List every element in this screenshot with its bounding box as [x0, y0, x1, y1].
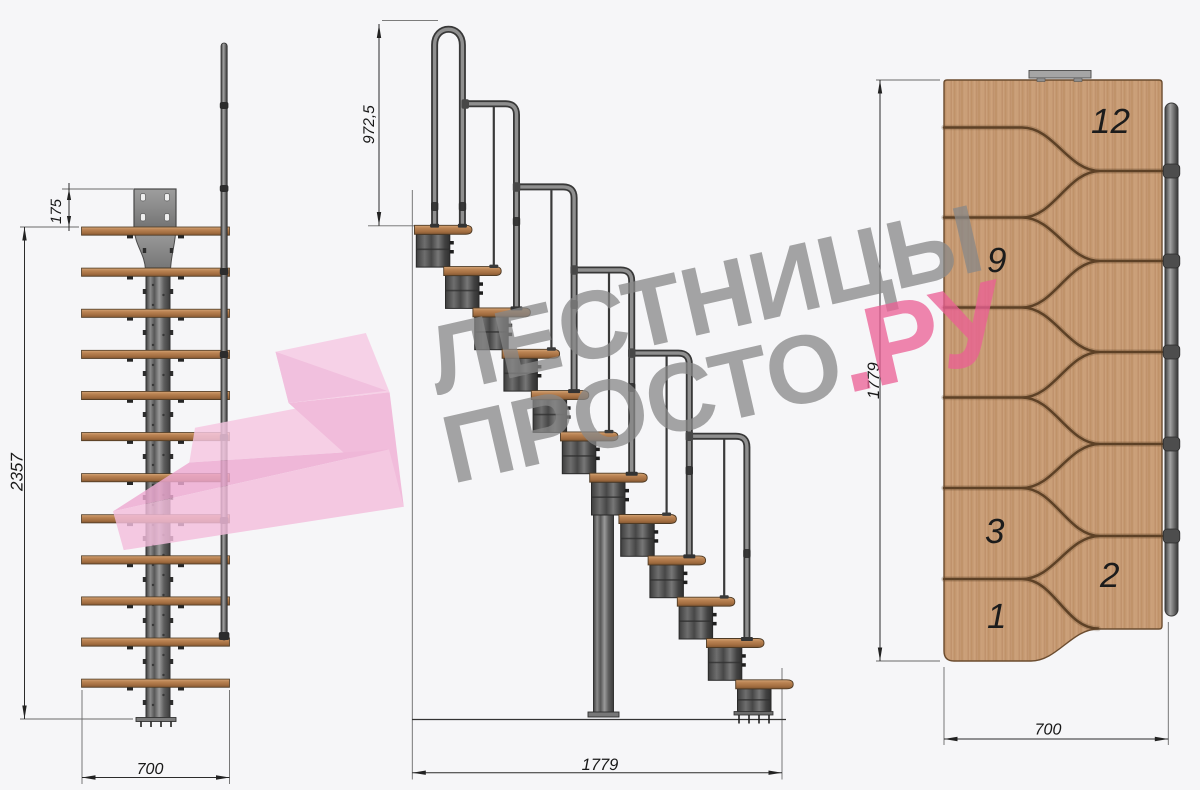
svg-text:700: 700 — [1035, 722, 1062, 739]
svg-text:1779: 1779 — [582, 756, 619, 774]
svg-text:1: 1 — [987, 597, 1006, 636]
svg-text:700: 700 — [137, 761, 164, 778]
svg-text:972,5: 972,5 — [361, 105, 378, 144]
svg-text:2: 2 — [1099, 556, 1119, 595]
svg-text:12: 12 — [1091, 102, 1130, 141]
svg-text:175: 175 — [48, 198, 65, 224]
svg-text:3: 3 — [985, 512, 1005, 551]
svg-text:2357: 2357 — [8, 453, 27, 492]
